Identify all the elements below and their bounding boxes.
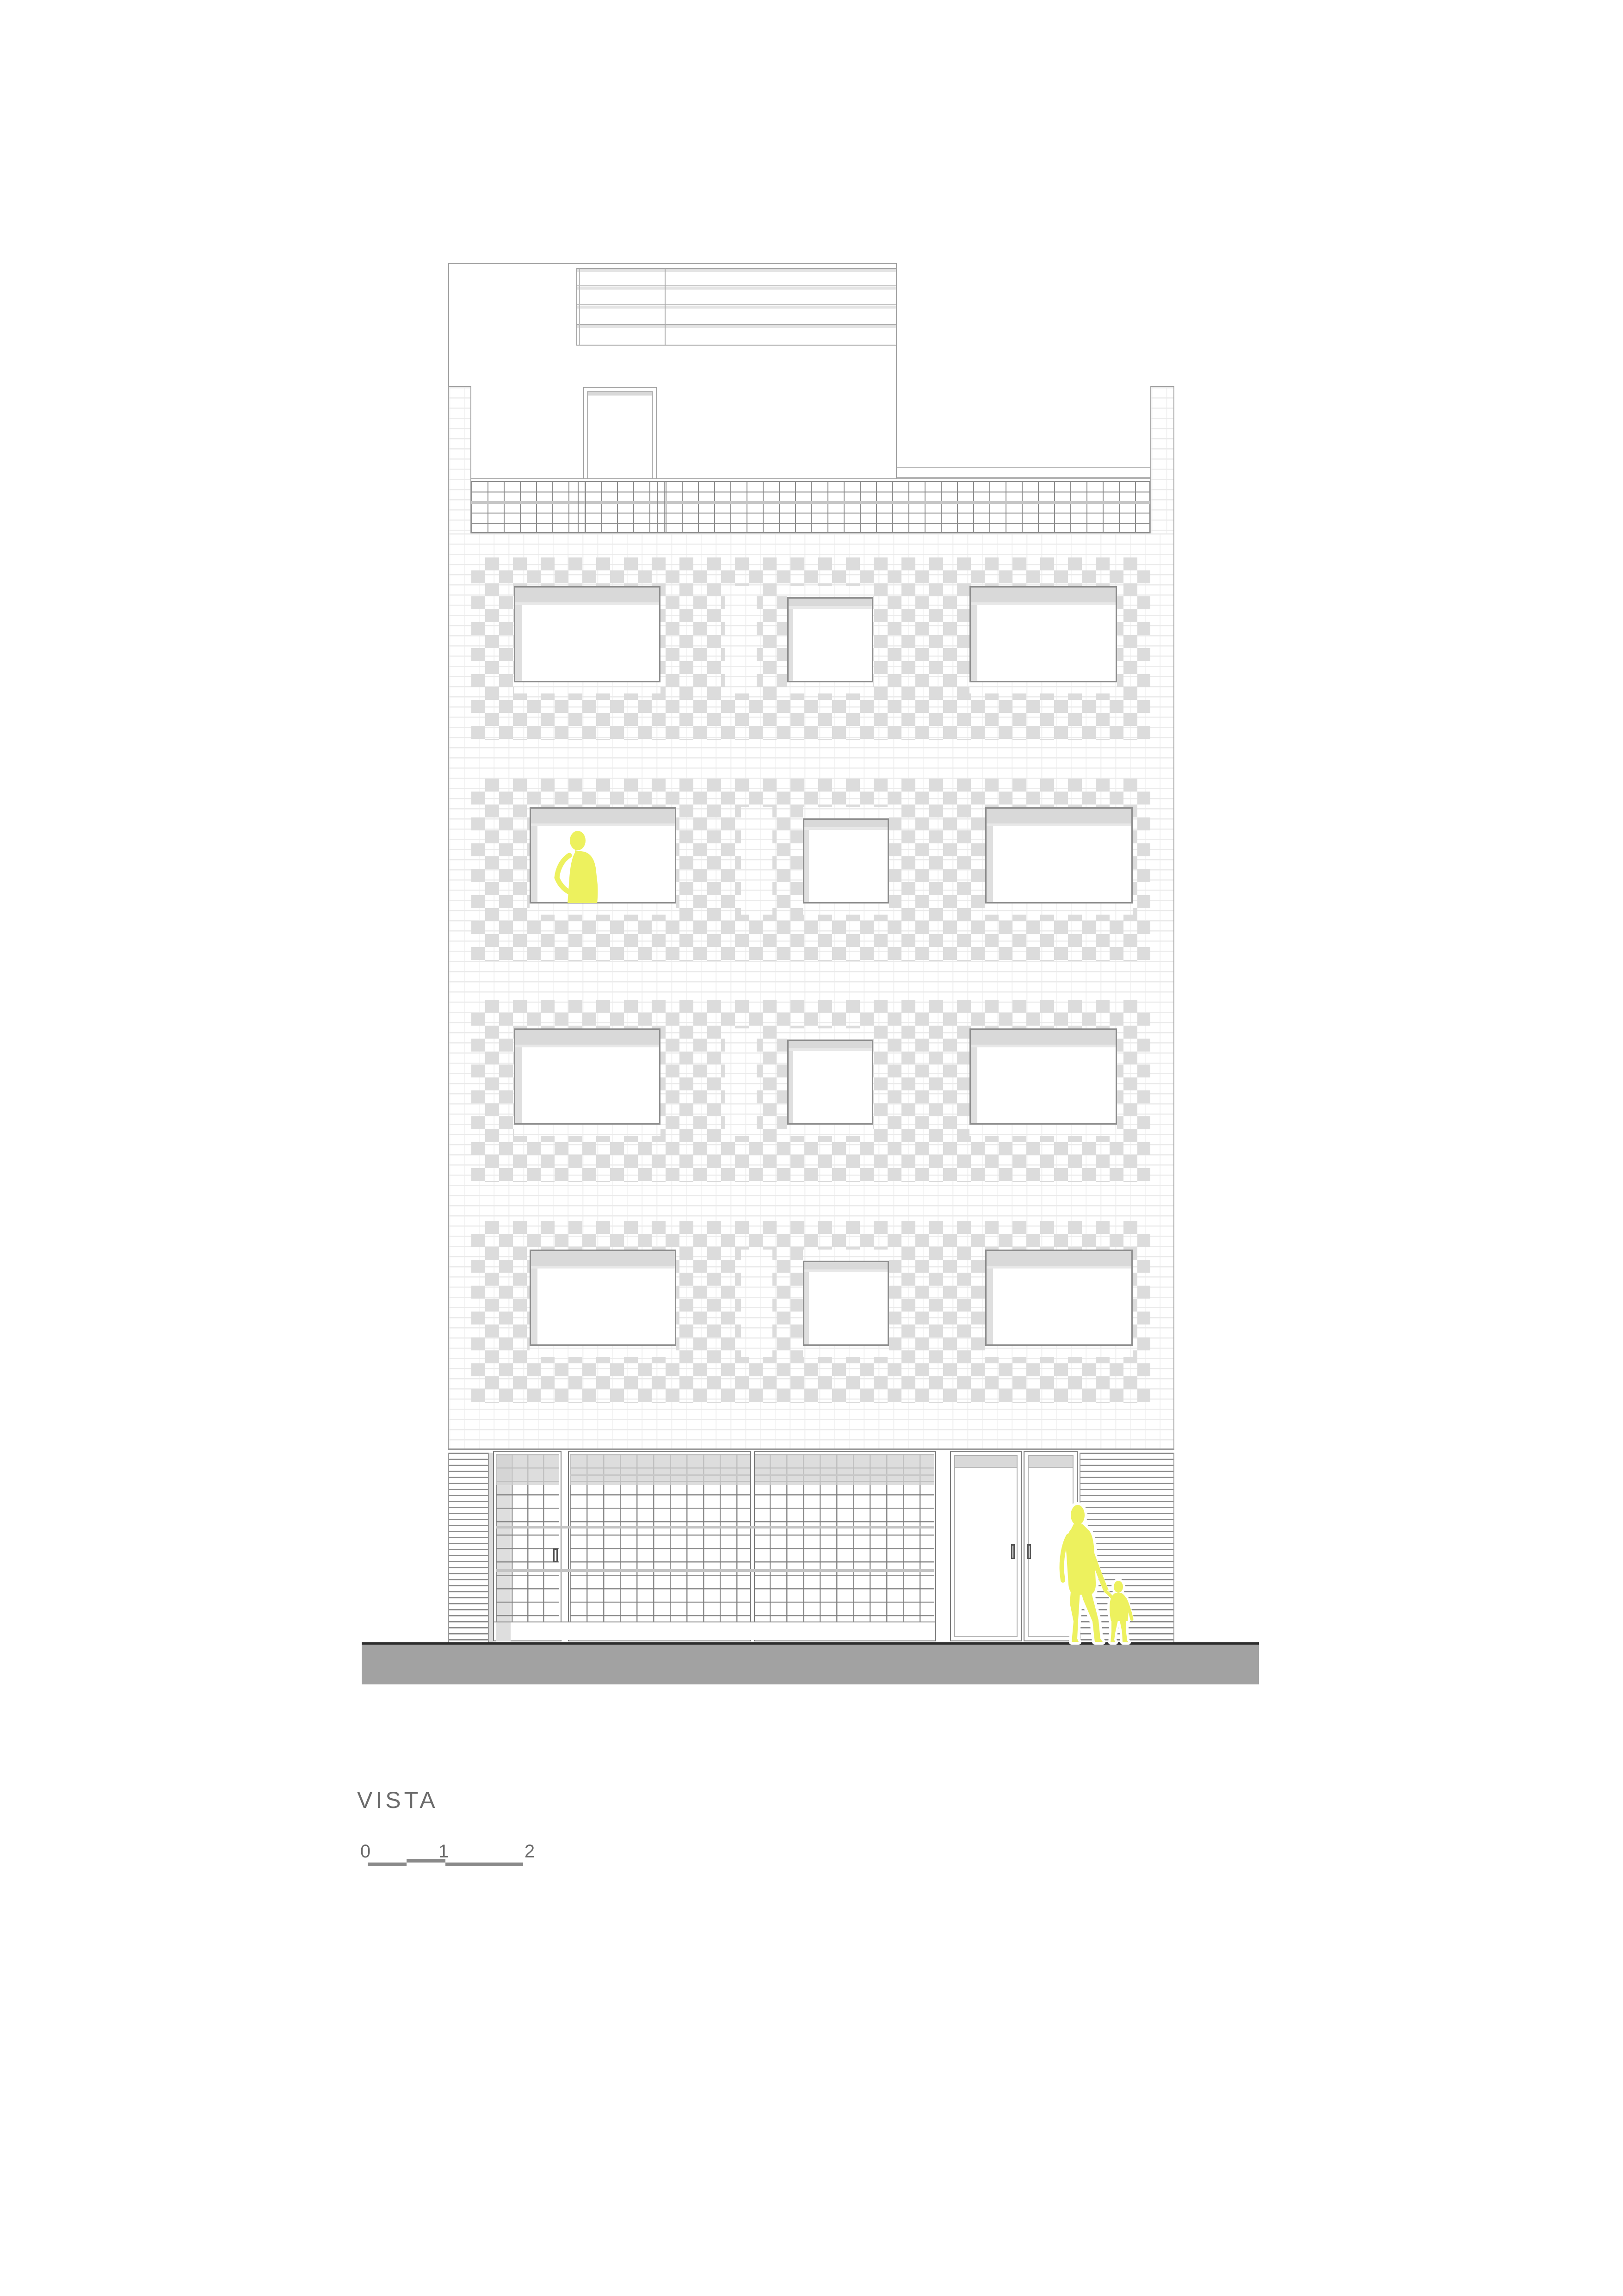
storefront-kick: [494, 1621, 935, 1640]
facade-window: [803, 818, 889, 904]
glass-band-gray: [496, 1454, 559, 1485]
railing-top-line: [471, 478, 1150, 479]
checker-pattern-zone: [471, 779, 1150, 807]
checker-pattern-zone: [772, 779, 803, 961]
checker-pattern-zone: [1117, 1000, 1150, 1182]
entry-door-handle: [1011, 1544, 1015, 1559]
window-jamb-shade: [804, 1272, 809, 1344]
window-shutter-box: [515, 1030, 659, 1045]
checker-pattern-zone: [772, 1221, 803, 1403]
pergola-inner-post: [579, 269, 580, 345]
window-shutter-box: [789, 1041, 872, 1048]
terrace-railing: [471, 481, 1150, 533]
window-shutter-edge: [789, 606, 872, 609]
pergola-row-shade: [577, 325, 896, 328]
scale-label-0: 0: [347, 1841, 384, 1862]
checker-pattern-zone: [1133, 1221, 1150, 1403]
checker-pattern-zone: [660, 557, 725, 740]
railing-post: [578, 481, 586, 533]
railing-mid-band: [471, 501, 1150, 504]
railing-post: [657, 481, 665, 533]
facade-window: [787, 597, 873, 682]
glass-transom-line: [496, 1569, 934, 1572]
checker-pattern-zone: [676, 779, 741, 961]
roof-door-leaf: [587, 391, 653, 479]
pergola-row-line: [577, 285, 896, 286]
window-jamb-shade: [789, 1051, 793, 1123]
window-shutter-edge: [789, 1048, 872, 1051]
drawing-title: VISTA: [357, 1787, 438, 1813]
checker-pattern-zone: [471, 557, 514, 740]
entry-door-transom: [1029, 1456, 1073, 1468]
checker-pattern-zone: [1133, 779, 1150, 961]
window-shutter-box: [531, 1251, 675, 1266]
scale-bar-segment: [445, 1863, 523, 1866]
entry-door-leaf: [1028, 1455, 1074, 1637]
storefront-top-line: [448, 1448, 1174, 1450]
window-shutter-box: [971, 588, 1116, 602]
checker-pattern-zone: [471, 915, 1150, 961]
louver-frame-shade: [489, 1453, 493, 1642]
parapet-line: [897, 467, 1150, 468]
checker-pattern-zone: [471, 1221, 530, 1403]
door-handle: [553, 1548, 558, 1562]
window-shutter-edge: [804, 1269, 888, 1272]
storefront-mullion: [750, 1451, 755, 1641]
roof-door-lintel: [588, 392, 652, 396]
checker-pattern-zone: [889, 779, 985, 961]
window-shutter-edge: [531, 1266, 675, 1269]
entry-door-leaf: [954, 1455, 1018, 1637]
window-shutter-box: [789, 599, 872, 606]
window-shutter-box: [971, 1030, 1116, 1045]
window-jamb-shade: [531, 826, 537, 902]
checker-pattern-zone: [471, 779, 530, 961]
entry-door-handle: [1027, 1544, 1031, 1559]
louver-panel-left: [448, 1453, 489, 1642]
window-jamb-shade: [971, 605, 977, 681]
window-jamb-shade: [987, 826, 993, 902]
checker-pattern-zone: [873, 557, 969, 740]
checker-pattern-zone: [889, 1221, 985, 1403]
checker-pattern-zone: [471, 1000, 1150, 1028]
checker-pattern-zone: [873, 1000, 969, 1182]
window-jamb-shade: [971, 1047, 977, 1123]
scale-label-2: 2: [511, 1841, 548, 1862]
pergola-divider: [665, 269, 666, 345]
elevation-drawing-canvas: VISTA 0 1 2: [0, 0, 1623, 2296]
louver-panel-right: [1080, 1453, 1174, 1642]
entry-door-transom: [955, 1456, 1017, 1468]
window-shutter-box: [804, 1262, 888, 1269]
checker-pattern-zone: [757, 1000, 787, 1182]
parapet-line: [897, 477, 1150, 478]
checker-pattern-zone: [676, 1221, 741, 1403]
window-jamb-shade: [804, 830, 809, 902]
window-shutter-edge: [804, 827, 888, 830]
pilaster-right: [1150, 386, 1174, 533]
checker-pattern-zone: [471, 693, 1150, 740]
ground-band: [362, 1642, 1259, 1684]
door-gray-column-kick: [496, 1622, 511, 1641]
window-shutter-edge: [515, 602, 659, 605]
pergola-row-shade: [577, 269, 896, 272]
window-shutter-edge: [987, 1266, 1131, 1269]
window-shutter-box: [531, 809, 675, 823]
pilaster-left: [448, 386, 471, 533]
checker-pattern-zone: [471, 1357, 1150, 1403]
checker-pattern-zone: [471, 1000, 514, 1182]
window-jamb-shade: [987, 1269, 993, 1344]
glass-transom-line: [496, 1526, 934, 1529]
window-shutter-box: [515, 588, 659, 602]
window-shutter-edge: [971, 602, 1116, 605]
checker-pattern-zone: [660, 1000, 725, 1182]
window-shutter-edge: [987, 823, 1131, 826]
window-jamb-shade: [531, 1269, 537, 1344]
scale-bar-segment: [368, 1863, 407, 1866]
window-shutter-edge: [971, 1045, 1116, 1047]
pergola-row-shade: [577, 306, 896, 309]
pergola-row-line: [577, 304, 896, 305]
checker-pattern-zone: [1117, 557, 1150, 740]
pergola-row-shade: [577, 287, 896, 290]
facade-window: [803, 1261, 889, 1346]
window-jamb-shade: [515, 605, 522, 681]
window-shutter-box: [804, 820, 888, 827]
checker-pattern-zone: [757, 557, 787, 740]
checker-pattern-zone: [471, 1136, 1150, 1182]
window-shutter-box: [987, 1251, 1131, 1266]
window-shutter-edge: [515, 1045, 659, 1047]
pergola-row-line: [577, 324, 896, 325]
window-jamb-shade: [789, 609, 793, 681]
window-jamb-shade: [515, 1047, 522, 1123]
window-shutter-edge: [531, 823, 675, 826]
checker-pattern-zone: [471, 1221, 1150, 1250]
checker-pattern-zone: [471, 557, 1150, 586]
window-shutter-box: [987, 809, 1131, 823]
facade-window: [787, 1040, 873, 1125]
scale-bar-segment: [407, 1859, 445, 1863]
